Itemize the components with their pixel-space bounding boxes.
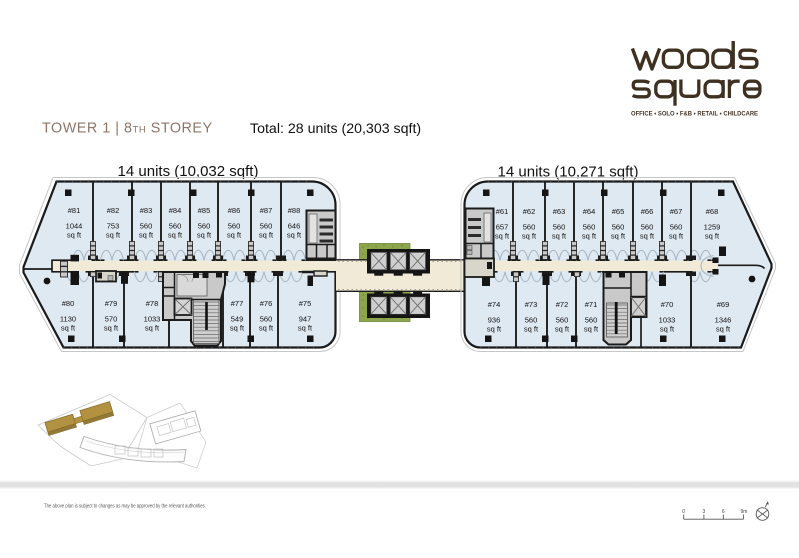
svg-text:560: 560 [525, 316, 538, 325]
svg-text:sq ft: sq ft [611, 232, 626, 241]
svg-text:#78: #78 [146, 299, 159, 308]
svg-text:1130: 1130 [60, 315, 76, 324]
svg-text:sq ft: sq ft [524, 325, 539, 334]
svg-text:#69: #69 [717, 300, 730, 309]
svg-text:3: 3 [703, 509, 706, 515]
svg-text:#68: #68 [706, 207, 719, 216]
svg-text:646: 646 [288, 222, 301, 231]
svg-text:#76: #76 [260, 299, 273, 308]
svg-text:#74: #74 [488, 300, 501, 309]
svg-text:6: 6 [722, 509, 725, 515]
svg-text:570: 570 [105, 315, 118, 324]
svg-text:sq ft: sq ft [287, 231, 302, 240]
svg-text:sq ft: sq ft [716, 325, 731, 334]
svg-text:sq ft: sq ft [584, 325, 599, 334]
svg-text:1259: 1259 [704, 223, 721, 232]
svg-text:sq ft: sq ft [259, 324, 274, 333]
svg-text:#73: #73 [525, 300, 538, 309]
svg-text:#70: #70 [661, 300, 674, 309]
svg-text:947: 947 [299, 315, 312, 324]
svg-text:#80: #80 [62, 299, 75, 308]
svg-text:1033: 1033 [144, 315, 161, 324]
svg-text:#65: #65 [612, 207, 625, 216]
svg-text:sq ft: sq ft [145, 324, 160, 333]
svg-text:#86: #86 [228, 206, 241, 215]
svg-text:#84: #84 [169, 206, 182, 215]
svg-text:sq ft: sq ft [660, 325, 675, 334]
svg-text:#87: #87 [260, 206, 273, 215]
svg-text:TOWER 1 | 8TH STOREY: TOWER 1 | 8TH STOREY [42, 121, 213, 137]
svg-text:560: 560 [553, 223, 566, 232]
svg-text:1044: 1044 [66, 222, 83, 231]
svg-text:#71: #71 [585, 300, 598, 309]
svg-text:sq ft: sq ft [104, 324, 119, 333]
svg-text:sq ft: sq ft [61, 324, 76, 333]
svg-text:sq ft: sq ft [298, 324, 313, 333]
svg-text:#81: #81 [68, 206, 81, 215]
svg-text:560: 560 [260, 315, 273, 324]
svg-text:Total: 28 units (20,303 sqft): Total: 28 units (20,303 sqft) [250, 121, 421, 137]
svg-text:#62: #62 [523, 207, 536, 216]
svg-text:#79: #79 [105, 299, 118, 308]
svg-text:#61: #61 [496, 207, 509, 216]
svg-text:560: 560 [556, 316, 569, 325]
svg-text:#85: #85 [198, 206, 211, 215]
svg-text:sq ft: sq ft [640, 232, 655, 241]
svg-text:#77: #77 [231, 299, 244, 308]
svg-text:560: 560 [523, 223, 536, 232]
svg-text:560: 560 [670, 223, 683, 232]
svg-text:sq ft: sq ft [106, 231, 121, 240]
svg-text:sq ft: sq ft [67, 231, 82, 240]
svg-text:#72: #72 [556, 300, 569, 309]
svg-text:#67: #67 [670, 207, 683, 216]
svg-text:560: 560 [641, 223, 654, 232]
svg-text:sq ft: sq ft [522, 232, 537, 241]
svg-text:753: 753 [107, 222, 120, 231]
svg-text:sq ft: sq ft [552, 232, 567, 241]
svg-text:560: 560 [583, 223, 596, 232]
svg-text:sq ft: sq ft [582, 232, 597, 241]
svg-text:sq ft: sq ft [487, 325, 502, 334]
svg-text:560: 560 [198, 222, 211, 231]
svg-text:560: 560 [140, 222, 153, 231]
svg-text:sq ft: sq ft [555, 325, 570, 334]
svg-text:936: 936 [488, 316, 501, 325]
svg-text:#63: #63 [553, 207, 566, 216]
svg-text:1346: 1346 [715, 316, 732, 325]
svg-text:sq ft: sq ft [227, 231, 242, 240]
svg-text:1033: 1033 [659, 316, 676, 325]
svg-text:sq ft: sq ft [139, 231, 154, 240]
svg-text:sq ft: sq ft [495, 232, 510, 241]
svg-text:#88: #88 [288, 206, 301, 215]
svg-text:sq ft: sq ft [230, 324, 245, 333]
svg-text:#83: #83 [140, 206, 153, 215]
svg-text:549: 549 [231, 315, 244, 324]
svg-text:560: 560 [260, 222, 273, 231]
svg-text:#75: #75 [299, 299, 312, 308]
svg-text:OFFICE • SOLO • F&B • RETAIL •: OFFICE • SOLO • F&B • RETAIL • CHILDCARE [631, 110, 759, 117]
svg-text:560: 560 [585, 316, 598, 325]
svg-text:sq ft: sq ft [259, 231, 274, 240]
svg-text:#82: #82 [107, 206, 120, 215]
svg-text:sq ft: sq ft [197, 231, 212, 240]
svg-text:#66: #66 [641, 207, 654, 216]
svg-text:The above plan is subject to c: The above plan is subject to changes as … [44, 504, 206, 510]
svg-text:560: 560 [169, 222, 182, 231]
svg-text:657: 657 [496, 223, 509, 232]
svg-text:0: 0 [682, 509, 685, 515]
svg-text:sq ft: sq ft [168, 231, 183, 240]
svg-text:560: 560 [228, 222, 241, 231]
svg-text:560: 560 [612, 223, 625, 232]
svg-text:sq ft: sq ft [669, 232, 684, 241]
svg-text:#64: #64 [583, 207, 596, 216]
svg-text:9m: 9m [741, 509, 748, 515]
svg-text:sq ft: sq ft [705, 232, 720, 241]
